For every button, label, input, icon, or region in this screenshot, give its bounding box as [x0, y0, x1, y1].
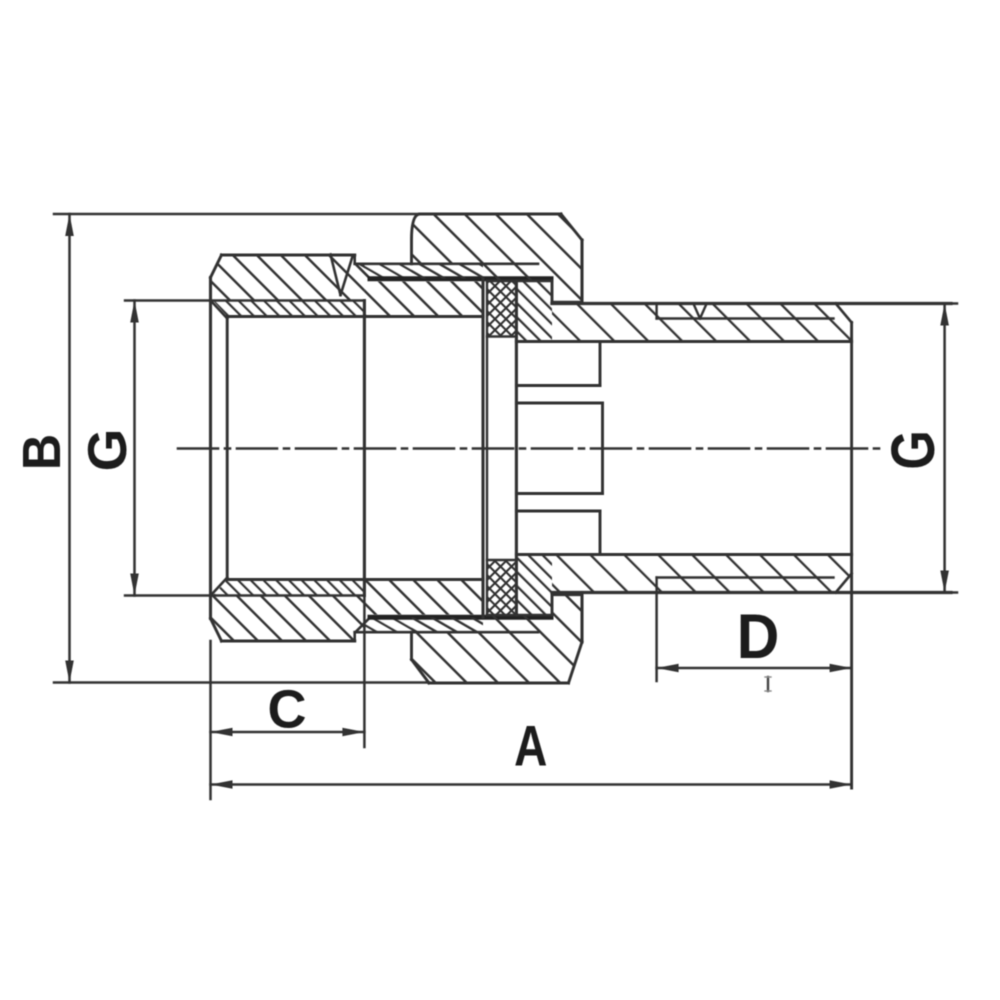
svg-text:G: G	[879, 430, 948, 469]
svg-text:B: B	[12, 434, 72, 470]
svg-text:C: C	[268, 680, 307, 740]
svg-text:D: D	[737, 601, 780, 671]
svg-text:A: A	[514, 715, 547, 779]
svg-text:G: G	[76, 429, 138, 472]
